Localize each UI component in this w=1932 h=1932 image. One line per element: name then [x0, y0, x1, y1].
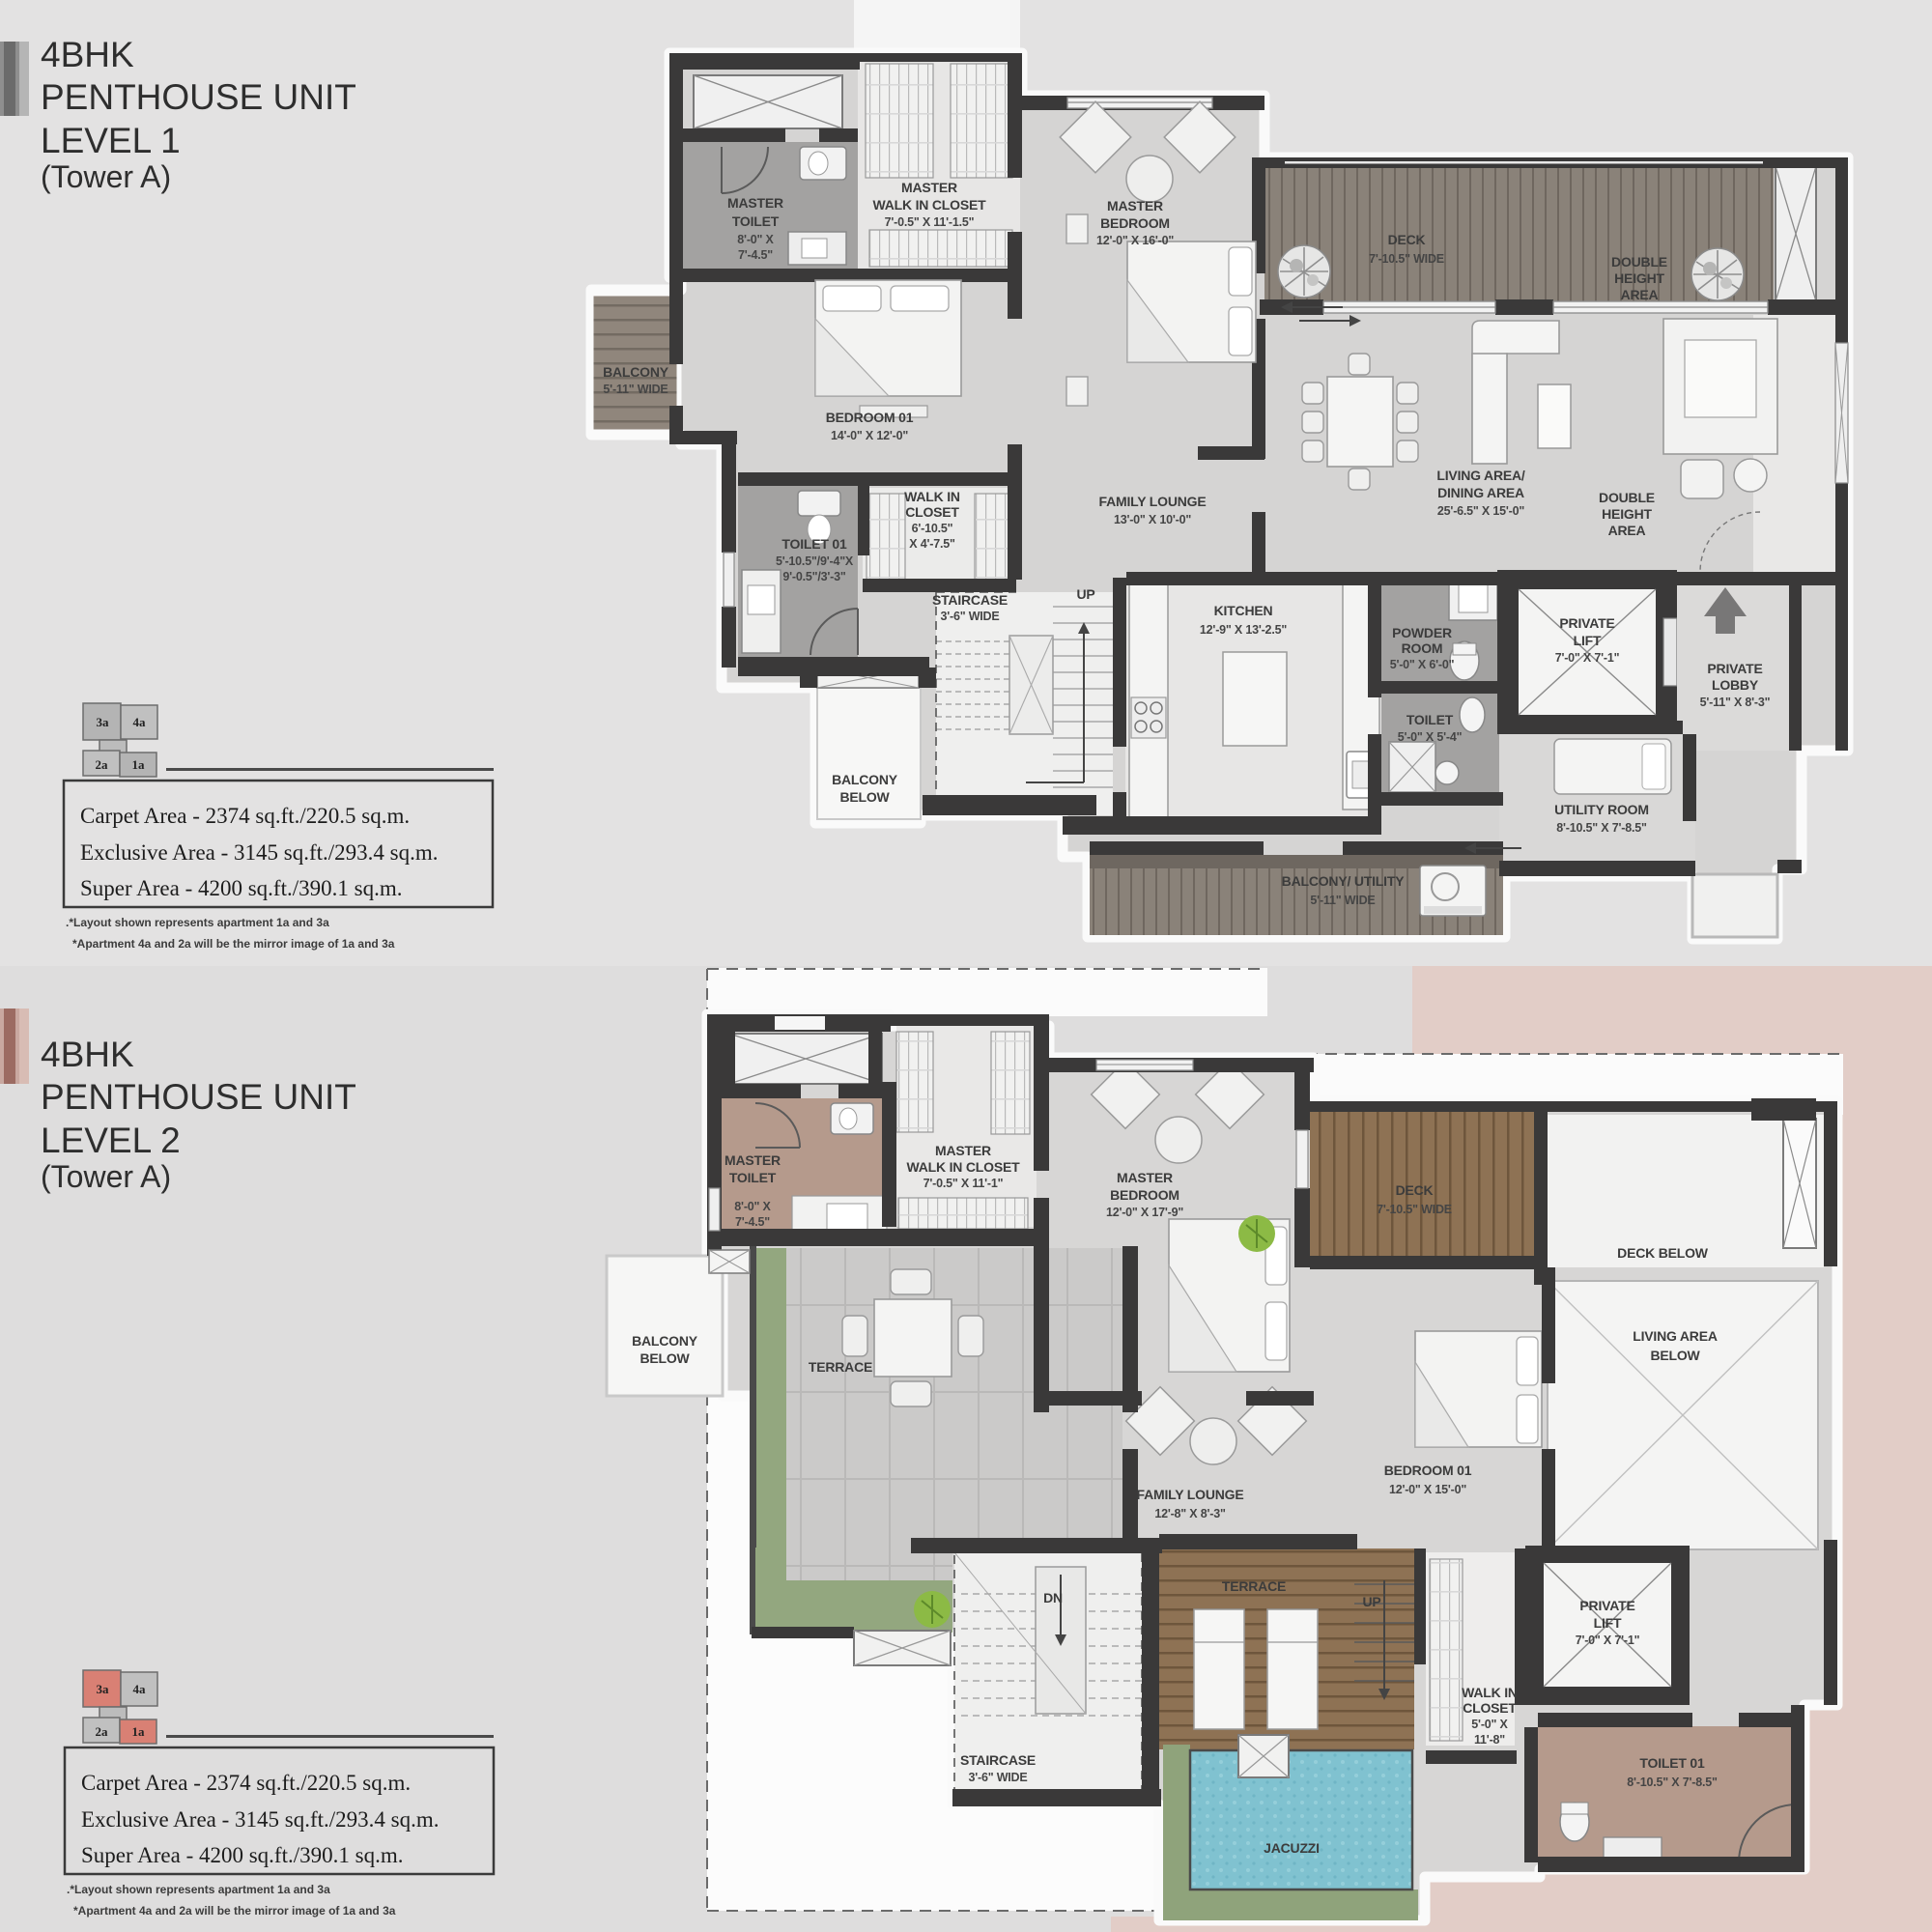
svg-text:DECK: DECK	[1396, 1182, 1434, 1198]
svg-text:WALK IN: WALK IN	[1462, 1685, 1518, 1700]
svg-text:MASTER: MASTER	[1107, 198, 1163, 213]
svg-text:4a: 4a	[133, 1682, 147, 1696]
svg-text:BELOW: BELOW	[639, 1350, 690, 1366]
svg-text:PENTHOUSE UNIT: PENTHOUSE UNIT	[41, 77, 356, 117]
svg-text:FAMILY LOUNGE: FAMILY LOUNGE	[1137, 1487, 1244, 1502]
svg-text:.*Layout shown represents apar: .*Layout shown represents apartment 1a a…	[67, 1883, 330, 1896]
svg-text:DOUBLE: DOUBLE	[1599, 490, 1655, 505]
svg-text:UP: UP	[1076, 586, 1094, 602]
svg-text:6'-10.5": 6'-10.5"	[912, 522, 953, 535]
svg-text:11'-8": 11'-8"	[1474, 1733, 1505, 1747]
svg-text:PRIVATE: PRIVATE	[1559, 615, 1614, 631]
svg-text:CLOSET: CLOSET	[905, 504, 959, 520]
svg-text:(Tower A): (Tower A)	[41, 1159, 171, 1194]
svg-text:BEDROOM: BEDROOM	[1100, 215, 1170, 231]
svg-text:FAMILY LOUNGE: FAMILY LOUNGE	[1099, 494, 1207, 509]
svg-text:BELOW: BELOW	[839, 789, 890, 805]
svg-text:DECK: DECK	[1388, 232, 1426, 247]
svg-text:7'-10.5" WIDE: 7'-10.5" WIDE	[1369, 252, 1444, 266]
svg-text:DN: DN	[1043, 1590, 1063, 1605]
svg-text:25'-6.5" X 15'-0": 25'-6.5" X 15'-0"	[1437, 504, 1524, 518]
svg-text:.*Layout shown represents apar: .*Layout shown represents apartment 1a a…	[66, 916, 329, 929]
svg-text:TERRACE: TERRACE	[1222, 1578, 1286, 1594]
svg-text:STAIRCASE: STAIRCASE	[932, 592, 1008, 608]
svg-text:7'-0" X 7'-1": 7'-0" X 7'-1"	[1555, 651, 1620, 665]
svg-text:5'-11" WIDE: 5'-11" WIDE	[1310, 894, 1375, 907]
svg-text:5'-11" X 8'-3": 5'-11" X 8'-3"	[1700, 696, 1771, 709]
svg-text:7'-0.5" X 11'-1.5": 7'-0.5" X 11'-1.5"	[885, 215, 975, 229]
svg-text:ROOM: ROOM	[1402, 640, 1443, 656]
svg-text:MASTER: MASTER	[727, 195, 783, 211]
svg-text:MASTER: MASTER	[1117, 1170, 1173, 1185]
svg-text:8'-0" X: 8'-0" X	[734, 1200, 771, 1213]
svg-text:LEVEL 1: LEVEL 1	[41, 121, 181, 160]
svg-text:4BHK: 4BHK	[41, 1035, 134, 1074]
svg-text:2a: 2a	[96, 1724, 109, 1739]
svg-text:PRIVATE: PRIVATE	[1579, 1598, 1634, 1613]
svg-text:WALK IN: WALK IN	[904, 489, 960, 504]
svg-text:BALCONY/ UTILITY: BALCONY/ UTILITY	[1282, 873, 1406, 889]
svg-text:LIFT: LIFT	[1574, 633, 1602, 648]
svg-text:3'-6" WIDE: 3'-6" WIDE	[968, 1771, 1027, 1784]
svg-text:UTILITY ROOM: UTILITY ROOM	[1554, 802, 1649, 817]
svg-text:Exclusive Area - 3145 sq.ft./2: Exclusive Area - 3145 sq.ft./293.4 sq.m.	[81, 1807, 440, 1832]
svg-text:TOILET 01: TOILET 01	[1639, 1755, 1705, 1771]
svg-text:Exclusive Area - 3145 sq.ft./2: Exclusive Area - 3145 sq.ft./293.4 sq.m.	[80, 840, 439, 865]
svg-text:12'-0" X 16'-0": 12'-0" X 16'-0"	[1096, 234, 1174, 247]
svg-text:1a: 1a	[132, 757, 146, 772]
svg-text:9'-0.5"/3'-3": 9'-0.5"/3'-3"	[782, 570, 846, 583]
svg-text:JACUZZI: JACUZZI	[1264, 1840, 1320, 1856]
svg-text:LIVING AREA: LIVING AREA	[1633, 1328, 1718, 1344]
svg-text:3a: 3a	[97, 715, 110, 729]
svg-text:AREA: AREA	[1608, 523, 1646, 538]
svg-text:PENTHOUSE UNIT: PENTHOUSE UNIT	[41, 1077, 356, 1117]
svg-text:DOUBLE: DOUBLE	[1611, 254, 1667, 270]
svg-text:5'-11" WIDE: 5'-11" WIDE	[603, 383, 668, 396]
svg-text:7'-10.5" WIDE: 7'-10.5" WIDE	[1377, 1203, 1452, 1216]
svg-text:TOILET: TOILET	[732, 213, 780, 229]
svg-text:CLOSET: CLOSET	[1463, 1700, 1517, 1716]
svg-text:13'-0" X 10'-0": 13'-0" X 10'-0"	[1114, 513, 1191, 526]
svg-text:2a: 2a	[96, 757, 109, 772]
svg-text:8'-0" X: 8'-0" X	[737, 233, 774, 246]
svg-text:DINING AREA: DINING AREA	[1437, 485, 1524, 500]
svg-text:MASTER: MASTER	[901, 180, 957, 195]
svg-text:TOILET: TOILET	[1406, 712, 1454, 727]
svg-text:DECK BELOW: DECK BELOW	[1617, 1245, 1709, 1261]
svg-text:POWDER: POWDER	[1392, 625, 1452, 640]
svg-text:TOILET: TOILET	[729, 1170, 777, 1185]
svg-text:12'-9" X 13'-2.5": 12'-9" X 13'-2.5"	[1200, 623, 1287, 637]
svg-text:HEIGHT: HEIGHT	[1614, 270, 1664, 286]
svg-text:MASTER: MASTER	[724, 1152, 781, 1168]
svg-text:*Apartment 4a and 2a will be t: *Apartment 4a and 2a will be the mirror …	[72, 937, 395, 951]
svg-text:4BHK: 4BHK	[41, 35, 134, 74]
svg-text:Super Area - 4200 sq.ft./390.1: Super Area - 4200 sq.ft./390.1 sq.m.	[80, 876, 402, 900]
svg-text:BALCONY: BALCONY	[632, 1333, 698, 1349]
svg-text:5'-0" X: 5'-0" X	[1471, 1718, 1508, 1731]
svg-text:WALK IN CLOSET: WALK IN CLOSET	[873, 197, 987, 213]
svg-text:TERRACE: TERRACE	[809, 1359, 872, 1375]
svg-text:LIFT: LIFT	[1594, 1615, 1622, 1631]
svg-text:7'-0.5" X 11'-1": 7'-0.5" X 11'-1"	[923, 1177, 1004, 1190]
svg-text:AREA: AREA	[1621, 287, 1659, 302]
svg-text:7'-4.5": 7'-4.5"	[738, 248, 773, 262]
svg-text:PRIVATE: PRIVATE	[1707, 661, 1762, 676]
svg-text:UP: UP	[1362, 1594, 1380, 1609]
svg-text:BEDROOM 01: BEDROOM 01	[1384, 1463, 1472, 1478]
svg-text:3a: 3a	[97, 1682, 110, 1696]
svg-text:12'-0" X 17'-9": 12'-0" X 17'-9"	[1106, 1206, 1183, 1219]
svg-text:TOILET 01: TOILET 01	[781, 536, 847, 552]
svg-text:LIVING AREA/: LIVING AREA/	[1436, 468, 1525, 483]
svg-text:BALCONY: BALCONY	[832, 772, 898, 787]
svg-text:Super Area - 4200 sq.ft./390.1: Super Area - 4200 sq.ft./390.1 sq.m.	[81, 1843, 403, 1867]
svg-text:7'-4.5": 7'-4.5"	[735, 1215, 770, 1229]
svg-text:5'-0" X 6'-0": 5'-0" X 6'-0"	[1390, 658, 1455, 671]
svg-text:*Apartment 4a and 2a will be t: *Apartment 4a and 2a will be the mirror …	[73, 1904, 396, 1918]
svg-text:8'-10.5" X 7'-8.5": 8'-10.5" X 7'-8.5"	[1627, 1776, 1718, 1789]
svg-text:LOBBY: LOBBY	[1712, 677, 1759, 693]
svg-text:1a: 1a	[132, 1724, 146, 1739]
svg-text:12'-0" X 15'-0": 12'-0" X 15'-0"	[1389, 1483, 1466, 1496]
svg-text:MASTER: MASTER	[935, 1143, 991, 1158]
svg-text:BELOW: BELOW	[1650, 1348, 1700, 1363]
svg-text:(Tower A): (Tower A)	[41, 159, 171, 194]
svg-text:BEDROOM: BEDROOM	[1110, 1187, 1179, 1203]
svg-text:STAIRCASE: STAIRCASE	[960, 1752, 1036, 1768]
svg-text:BEDROOM 01: BEDROOM 01	[826, 410, 914, 425]
svg-text:WALK IN CLOSET: WALK IN CLOSET	[907, 1159, 1021, 1175]
svg-text:8'-10.5" X 7'-8.5": 8'-10.5" X 7'-8.5"	[1556, 821, 1647, 835]
svg-text:12'-8" X 8'-3": 12'-8" X 8'-3"	[1154, 1507, 1226, 1520]
svg-text:HEIGHT: HEIGHT	[1602, 506, 1652, 522]
svg-text:BALCONY: BALCONY	[603, 364, 669, 380]
svg-text:KITCHEN: KITCHEN	[1214, 603, 1273, 618]
svg-text:5'-0" X 5'-4": 5'-0" X 5'-4"	[1398, 730, 1463, 744]
svg-text:5'-10.5"/9'-4"X: 5'-10.5"/9'-4"X	[776, 554, 854, 568]
svg-text:14'-0" X 12'-0": 14'-0" X 12'-0"	[831, 429, 908, 442]
svg-text:LEVEL 2: LEVEL 2	[41, 1121, 181, 1160]
svg-text:X 4'-7.5": X 4'-7.5"	[909, 537, 955, 551]
svg-text:Carpet Area - 2374 sq.ft./220.: Carpet Area - 2374 sq.ft./220.5 sq.m.	[81, 1771, 411, 1795]
svg-text:3'-6" WIDE: 3'-6" WIDE	[940, 610, 999, 623]
svg-text:Carpet Area - 2374 sq.ft./220.: Carpet Area - 2374 sq.ft./220.5 sq.m.	[80, 804, 410, 828]
svg-text:7'-0" X 7'-1": 7'-0" X 7'-1"	[1576, 1634, 1640, 1647]
svg-text:4a: 4a	[133, 715, 147, 729]
